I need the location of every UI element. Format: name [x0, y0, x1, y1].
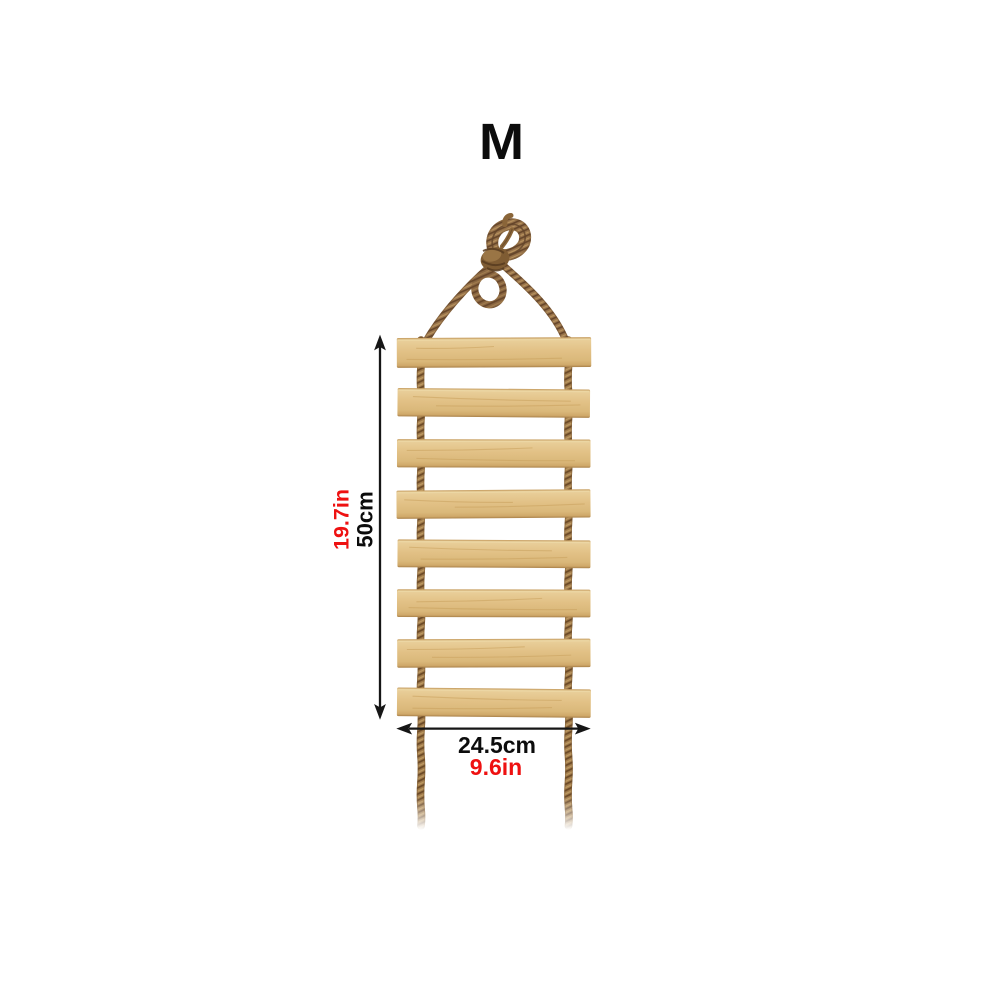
svg-text:9.6in: 9.6in [470, 754, 522, 780]
svg-text:19.7in: 19.7in [330, 489, 354, 550]
svg-text:50cm: 50cm [353, 491, 378, 547]
svg-text:M: M [479, 113, 524, 170]
